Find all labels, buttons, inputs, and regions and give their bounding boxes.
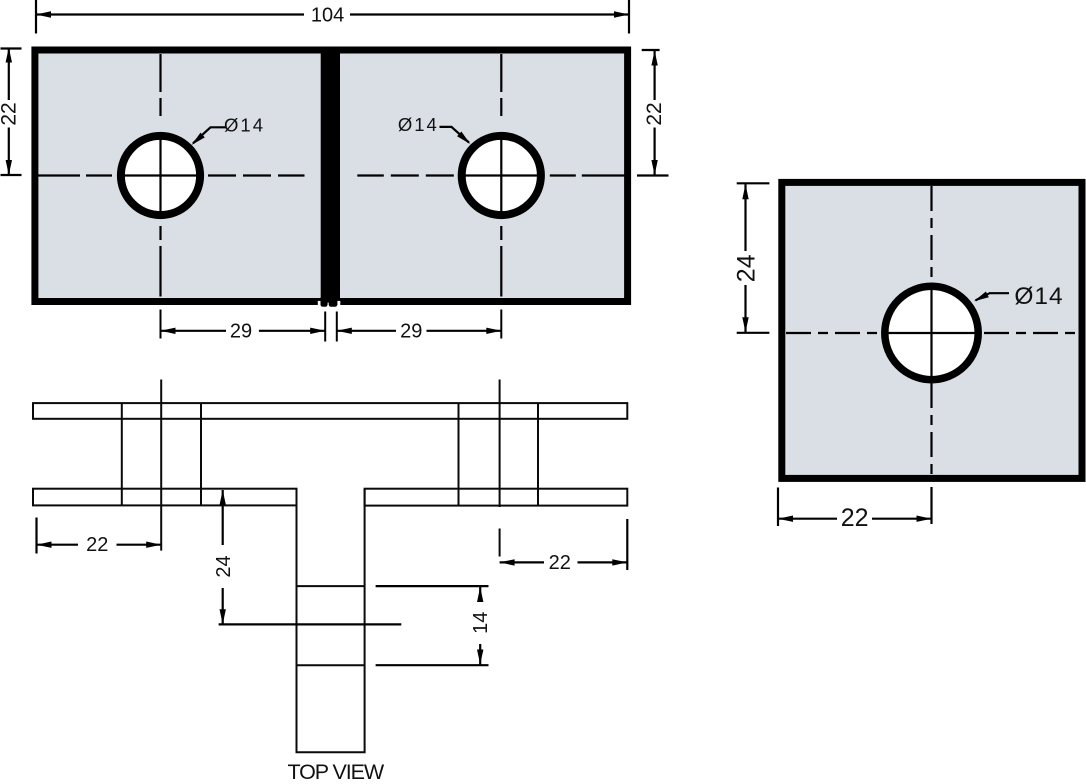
svg-text:22: 22 — [643, 102, 666, 125]
svg-text:22: 22 — [841, 504, 869, 532]
svg-text:24: 24 — [213, 555, 235, 577]
svg-text:Ø14: Ø14 — [224, 115, 265, 136]
svg-text:14: 14 — [470, 612, 492, 634]
svg-text:104: 104 — [311, 5, 344, 27]
svg-text:22: 22 — [86, 534, 108, 556]
svg-text:TOP VIEW: TOP VIEW — [288, 760, 385, 784]
svg-text:24: 24 — [732, 254, 760, 282]
svg-text:Ø14: Ø14 — [398, 114, 439, 135]
svg-text:22: 22 — [549, 552, 571, 574]
svg-text:Ø14: Ø14 — [1014, 283, 1063, 310]
svg-text:29: 29 — [230, 320, 252, 342]
svg-text:22: 22 — [0, 102, 21, 125]
svg-text:29: 29 — [400, 320, 422, 342]
